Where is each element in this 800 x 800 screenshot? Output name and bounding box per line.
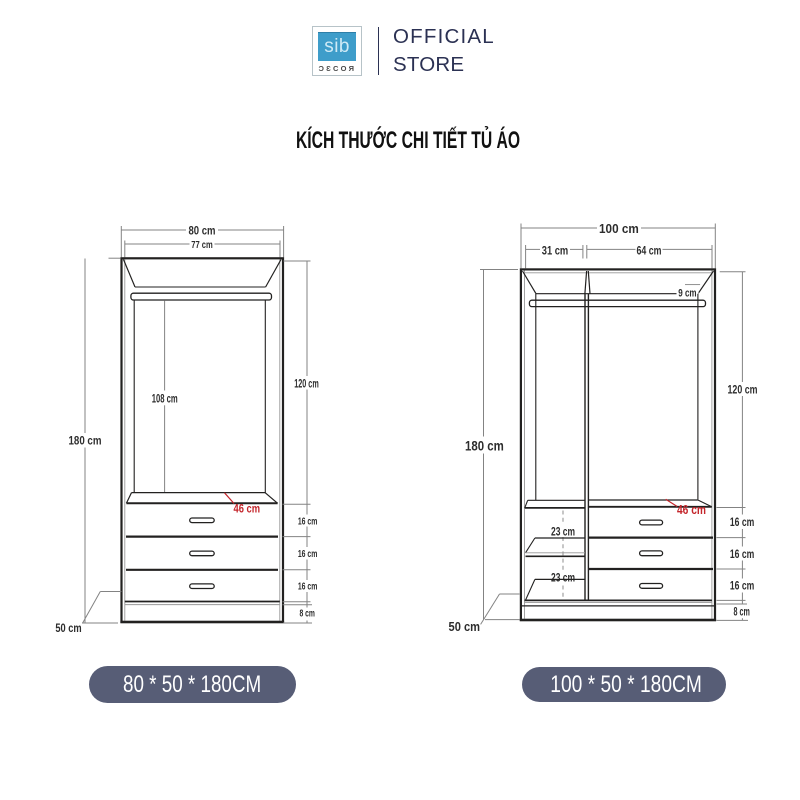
svg-text:80 cm: 80 cm [189,226,216,238]
svg-text:16 cm: 16 cm [298,548,318,560]
svg-text:50 cm: 50 cm [449,620,481,634]
svg-text:8 cm: 8 cm [300,607,315,619]
svg-text:16 cm: 16 cm [730,515,754,529]
svg-text:46 cm: 46 cm [677,502,706,517]
svg-text:50 cm: 50 cm [55,623,81,635]
svg-text:16 cm: 16 cm [298,515,318,527]
svg-text:23 cm: 23 cm [551,571,575,585]
svg-text:108 cm: 108 cm [152,392,178,406]
svg-text:31 cm: 31 cm [542,243,569,257]
svg-text:16 cm: 16 cm [730,579,754,593]
svg-text:9 cm: 9 cm [678,287,696,299]
svg-text:120 cm: 120 cm [728,383,758,397]
svg-text:100 cm: 100 cm [599,221,639,236]
svg-text:46 cm: 46 cm [234,503,261,515]
svg-text:16 cm: 16 cm [298,581,318,593]
svg-text:180 cm: 180 cm [465,439,504,454]
svg-text:16 cm: 16 cm [730,547,754,561]
svg-text:8 cm: 8 cm [734,605,750,619]
svg-text:77 cm: 77 cm [191,240,213,251]
svg-text:64 cm: 64 cm [637,243,662,257]
svg-text:120 cm: 120 cm [294,377,319,391]
svg-text:180 cm: 180 cm [69,433,102,447]
svg-text:23 cm: 23 cm [551,524,575,538]
